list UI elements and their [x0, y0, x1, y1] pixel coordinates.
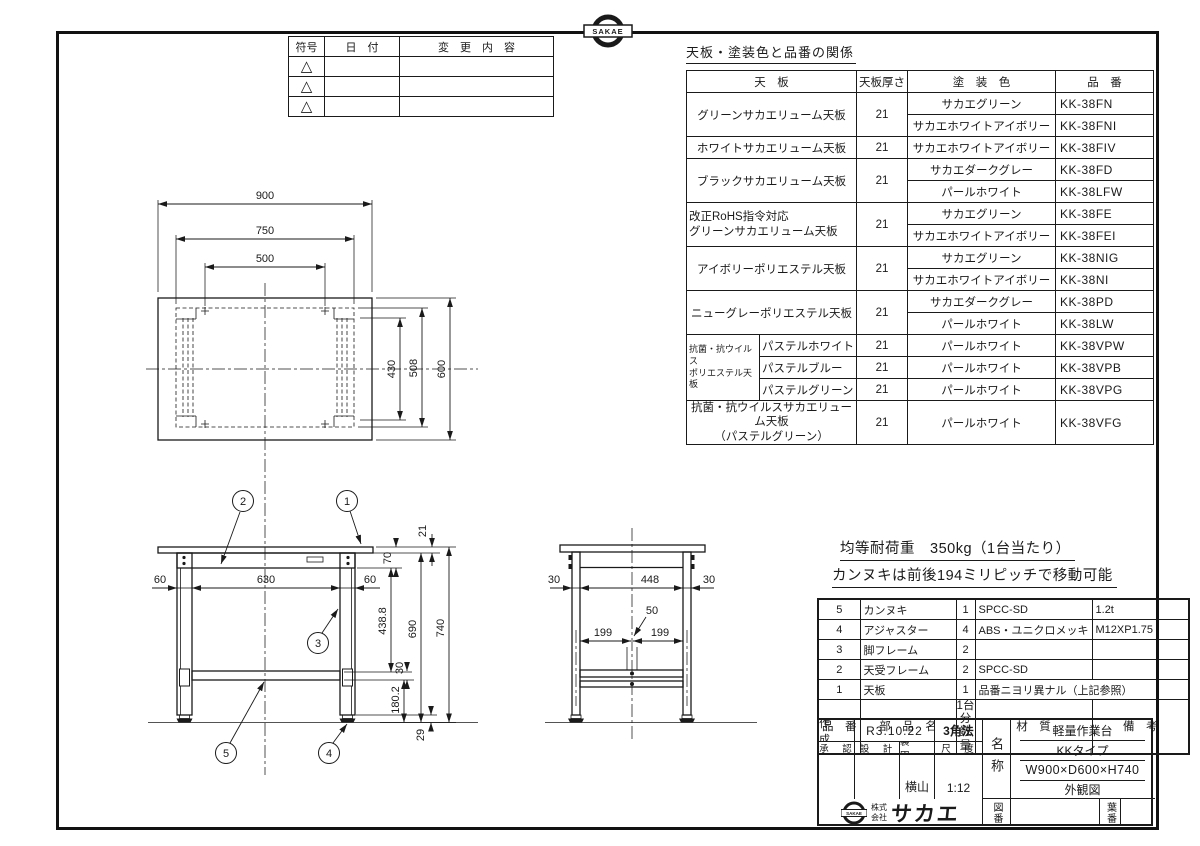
- part-number: KK-38FEI: [1056, 225, 1154, 247]
- board-thickness: 21: [857, 137, 908, 159]
- paint-color: パールホワイト: [908, 401, 1056, 445]
- scale-value: 1:12: [935, 754, 982, 799]
- part-number: KK-38FD: [1056, 159, 1154, 181]
- name-label: 名称: [987, 737, 1006, 781]
- sheet-no-value: [1120, 799, 1155, 826]
- revision-col-date: 日 付: [325, 37, 400, 57]
- part-name: カンヌキ: [860, 599, 956, 620]
- part-remarks: [1092, 640, 1189, 660]
- paint-color: サカエホワイトアイボリー: [908, 137, 1056, 159]
- paint-color: パールホワイト: [908, 313, 1056, 335]
- part-number: KK-38LFW: [1056, 181, 1154, 203]
- drawing-no-label-cell: 図番: [982, 799, 1010, 826]
- paint-col-thickness: 天板厚さ: [857, 71, 908, 93]
- part-number: KK-38VPW: [1056, 335, 1154, 357]
- part-qty: 4: [956, 620, 975, 640]
- board-name: 抗菌・抗ウイルスサカエリューム天板 （パステルグリーン）: [687, 401, 857, 445]
- paint-table-block: 天板・塗装色と品番の関係 天 板 天板厚さ 塗 装 色 品 番 グリーンサカエリ…: [686, 42, 1154, 445]
- part-material: SPCC-SD: [975, 599, 1092, 620]
- board-group-name: 抗菌・抗ウイルス ポリエステル天板: [687, 335, 760, 401]
- emblem-text: SAKAE: [846, 811, 862, 816]
- part-number: KK-38VPG: [1056, 379, 1154, 401]
- board-thickness: 21: [857, 401, 908, 445]
- sakae-emblem-icon: SAKAE: [841, 800, 867, 826]
- design-label: 設 計: [855, 742, 900, 754]
- part-number: KK-38LW: [1056, 313, 1154, 335]
- drawing-no-value: [1010, 799, 1099, 826]
- projection-method: 3角法: [935, 720, 982, 742]
- paint-color: サカエホワイトアイボリー: [908, 115, 1056, 137]
- title-block: 作 成 R3.10.22 3角法 承 認 設 計 製 図 尺 度 横山 1:12…: [817, 718, 1153, 826]
- name-label-cell: 名称: [982, 720, 1010, 799]
- product-size: W900×D600×H740: [1010, 760, 1155, 780]
- board-thickness: 21: [857, 93, 908, 137]
- sheet-no-label-cell: 葉番: [1099, 799, 1120, 826]
- board-thickness: 21: [857, 335, 908, 357]
- part-name: 天板: [860, 680, 956, 700]
- board-thickness: 21: [857, 247, 908, 291]
- part-no: 3: [818, 640, 860, 660]
- part-number: KK-38VFG: [1056, 401, 1154, 445]
- created-date: R3.10.22: [855, 720, 935, 742]
- part-remarks: M12XP1.75: [1092, 620, 1189, 640]
- part-name: 脚フレーム: [860, 640, 956, 660]
- approved-label: 承 認: [819, 742, 855, 754]
- draft-label: 製 図: [900, 742, 935, 754]
- part-number: KK-38PD: [1056, 291, 1154, 313]
- revision-change-cell: [400, 97, 554, 117]
- part-no: 2: [818, 660, 860, 680]
- board-thickness: 21: [857, 379, 908, 401]
- paint-col-color: 塗 装 色: [908, 71, 1056, 93]
- board-name: ブラックサカエリューム天板: [687, 159, 857, 203]
- paint-col-board: 天 板: [687, 71, 857, 93]
- board-name: グリーンサカエリューム天板: [687, 93, 857, 137]
- paint-color: パールホワイト: [908, 335, 1056, 357]
- maker-cell: SAKAE 株式 会社 サカエ: [819, 799, 982, 826]
- paint-color: サカエグリーン: [908, 93, 1056, 115]
- company-name: サカエ: [889, 799, 961, 826]
- paint-table-title: 天板・塗装色と品番の関係: [686, 42, 856, 64]
- paint-color: パールホワイト: [908, 357, 1056, 379]
- part-no: 1: [818, 680, 860, 700]
- paint-color: サカエグリーン: [908, 203, 1056, 225]
- part-number: KK-38FIV: [1056, 137, 1154, 159]
- part-material: 品番ニヨリ異ナル（上記参照）: [975, 680, 1189, 700]
- created-label: 作 成: [819, 720, 855, 742]
- part-remarks: 1.2t: [1092, 599, 1189, 620]
- part-number: KK-38FE: [1056, 203, 1154, 225]
- product-name: 軽量作業台: [1010, 720, 1155, 740]
- board-name: 改正RoHS指令対応 グリーンサカエリューム天板: [687, 203, 857, 247]
- scale-label: 尺 度: [935, 742, 982, 754]
- part-number: KK-38NI: [1056, 269, 1154, 291]
- note-kannuki-pitch: カンヌキは前後194ミリピッチで移動可能: [832, 564, 1117, 588]
- part-name: 天受フレーム: [860, 660, 956, 680]
- part-no: 5: [818, 599, 860, 620]
- part-number: KK-38VPB: [1056, 357, 1154, 379]
- revision-col-symbol: 符号: [289, 37, 325, 57]
- draft-value: 横山: [900, 754, 935, 799]
- board-name: ニューグレーポリエステル天板: [687, 291, 857, 335]
- view-type: 外観図: [1010, 780, 1155, 799]
- part-material: ABS・ユニクロメッキ: [975, 620, 1092, 640]
- part-remarks: [1092, 660, 1189, 680]
- part-number: KK-38FN: [1056, 93, 1154, 115]
- revision-symbol: △: [289, 97, 325, 117]
- paint-color: パールホワイト: [908, 181, 1056, 203]
- part-material: SPCC-SD: [975, 660, 1092, 680]
- paint-color: サカエダークグレー: [908, 159, 1056, 181]
- revision-date-cell: [325, 57, 400, 77]
- revision-change-cell: [400, 77, 554, 97]
- revision-col-change: 変 更 内 容: [400, 37, 554, 57]
- revision-date-cell: [325, 97, 400, 117]
- board-name: パステルホワイト: [760, 335, 857, 357]
- drawing-no-label: 図番: [989, 802, 1004, 824]
- revision-date-cell: [325, 77, 400, 97]
- part-name: アジャスター: [860, 620, 956, 640]
- product-type: KKタイプ: [1010, 740, 1155, 760]
- note-load-capacity: 均等耐荷重 350kg（1台当たり）: [840, 537, 1075, 561]
- board-name: アイボリーポリエステル天板: [687, 247, 857, 291]
- paint-color: サカエダークグレー: [908, 291, 1056, 313]
- revision-change-cell: [400, 57, 554, 77]
- part-qty: 2: [956, 640, 975, 660]
- paint-color: サカエホワイトアイボリー: [908, 269, 1056, 291]
- paint-table: 天 板 天板厚さ 塗 装 色 品 番 グリーンサカエリューム天板 21 サカエグ…: [686, 70, 1154, 445]
- part-qty: 2: [956, 660, 975, 680]
- company-prefix: 株式 会社: [871, 803, 887, 821]
- board-thickness: 21: [857, 291, 908, 335]
- paint-color: パールホワイト: [908, 379, 1056, 401]
- revision-symbol: △: [289, 57, 325, 77]
- revision-table: 符号 日 付 変 更 内 容 △ △ △: [288, 36, 554, 117]
- part-material: [975, 640, 1092, 660]
- part-qty: 1: [956, 599, 975, 620]
- drawing-sheet: 符号 日 付 変 更 内 容 △ △ △ 天板・塗装色と品番の関係 天 板 天板…: [0, 0, 1200, 846]
- drawing-notes: 均等耐荷重 350kg（1台当たり） カンヌキは前後194ミリピッチで移動可能: [832, 537, 1117, 591]
- paint-col-part: 品 番: [1056, 71, 1154, 93]
- part-number: KK-38NIG: [1056, 247, 1154, 269]
- board-name: パステルグリーン: [760, 379, 857, 401]
- part-qty: 1: [956, 680, 975, 700]
- board-name: ホワイトサカエリューム天板: [687, 137, 857, 159]
- board-thickness: 21: [857, 159, 908, 203]
- board-thickness: 21: [857, 203, 908, 247]
- design-value: [855, 754, 900, 799]
- paint-color: サカエホワイトアイボリー: [908, 225, 1056, 247]
- sheet-no-label: 葉番: [1103, 802, 1118, 824]
- part-no: 4: [818, 620, 860, 640]
- approved-value: [819, 754, 855, 799]
- part-number: KK-38FNI: [1056, 115, 1154, 137]
- board-thickness: 21: [857, 357, 908, 379]
- revision-symbol: △: [289, 77, 325, 97]
- paint-color: サカエグリーン: [908, 247, 1056, 269]
- board-name: パステルブルー: [760, 357, 857, 379]
